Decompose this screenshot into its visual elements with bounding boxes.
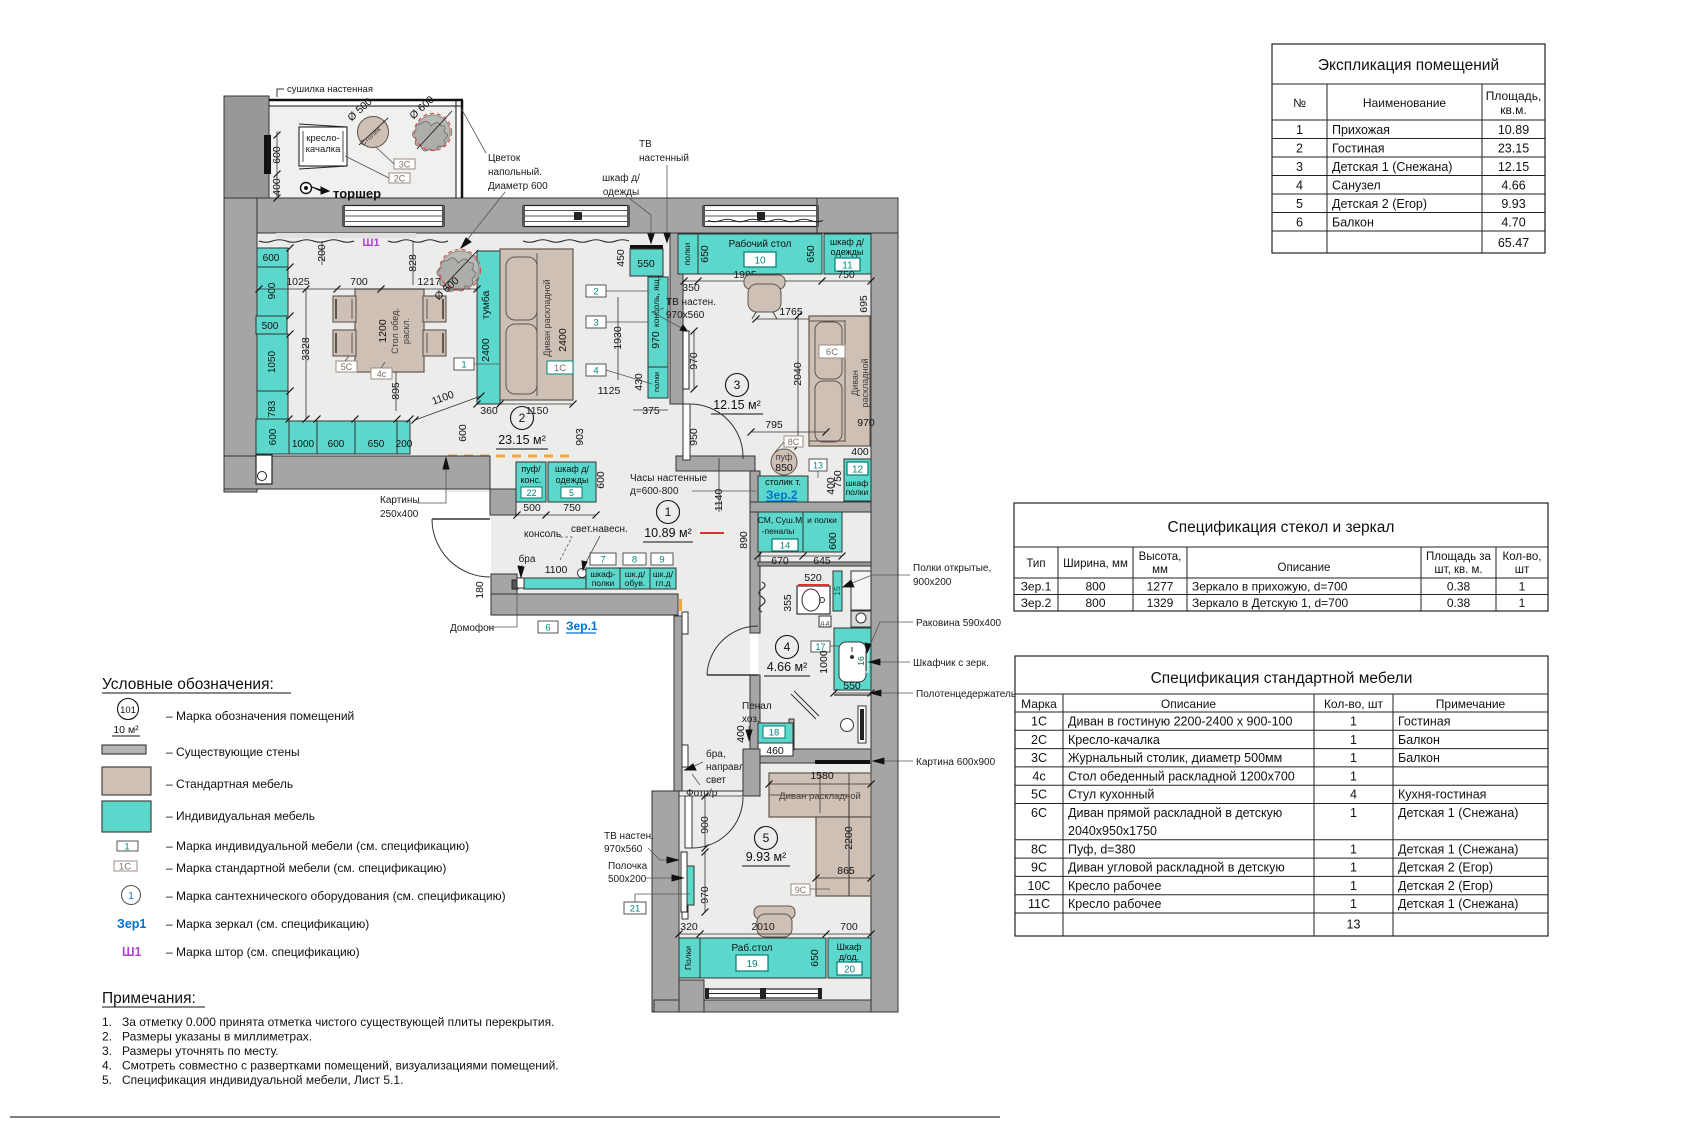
svg-text:Описание: Описание bbox=[1278, 562, 1331, 574]
svg-text:4: 4 bbox=[1350, 788, 1357, 802]
svg-text:4.66: 4.66 bbox=[1501, 179, 1525, 193]
svg-text:460: 460 bbox=[766, 745, 784, 757]
svg-text:3С: 3С bbox=[1031, 751, 1047, 765]
svg-text:– Стандартная мебель: – Стандартная мебель bbox=[166, 777, 293, 791]
svg-text:400: 400 bbox=[851, 446, 869, 458]
svg-text:Полочка: Полочка bbox=[608, 861, 648, 872]
svg-text:8С: 8С bbox=[788, 437, 800, 447]
svg-text:2400: 2400 bbox=[480, 338, 492, 362]
svg-text:5.: 5. bbox=[102, 1073, 112, 1087]
svg-text:обув.: обув. bbox=[625, 578, 646, 588]
svg-text:Балкон: Балкон bbox=[1398, 733, 1440, 747]
svg-text:Зер.1: Зер.1 bbox=[566, 619, 598, 633]
svg-text:раскл.: раскл. bbox=[401, 318, 411, 344]
svg-text:Кресло рабочее: Кресло рабочее bbox=[1068, 897, 1161, 911]
svg-text:шкаф д/: шкаф д/ bbox=[830, 237, 865, 247]
svg-text:1580: 1580 bbox=[810, 770, 834, 782]
svg-text:970х560: 970х560 bbox=[604, 844, 643, 855]
svg-text:Прихожая: Прихожая bbox=[1332, 123, 1390, 137]
svg-text:500: 500 bbox=[262, 321, 279, 332]
svg-text:65.47: 65.47 bbox=[1498, 236, 1529, 250]
svg-text:5С: 5С bbox=[1031, 788, 1047, 802]
svg-text:1: 1 bbox=[1350, 879, 1357, 893]
svg-text:одежды: одежды bbox=[556, 475, 589, 485]
svg-text:8С: 8С bbox=[1031, 842, 1047, 856]
svg-text:полки: полки bbox=[846, 487, 869, 497]
svg-text:890: 890 bbox=[738, 531, 750, 549]
svg-text:Шкаф: Шкаф bbox=[837, 942, 862, 952]
svg-text:6С: 6С bbox=[1031, 806, 1047, 820]
svg-text:Кресло рабочее: Кресло рабочее bbox=[1068, 879, 1161, 893]
svg-text:800: 800 bbox=[1085, 580, 1105, 594]
svg-text:10С: 10С bbox=[1028, 879, 1051, 893]
svg-text:качалка: качалка bbox=[306, 144, 342, 155]
svg-text:Кухня-гостиная: Кухня-гостиная bbox=[1398, 788, 1486, 802]
svg-text:360: 360 bbox=[480, 405, 498, 417]
svg-text:3: 3 bbox=[734, 378, 741, 392]
svg-text:Детская 1 (Снежана): Детская 1 (Снежана) bbox=[1398, 897, 1518, 911]
svg-text:За отметку 0.000 принята отмет: За отметку 0.000 принята отметка чистого… bbox=[122, 1015, 554, 1029]
svg-text:3: 3 bbox=[1296, 160, 1303, 174]
svg-text:750: 750 bbox=[832, 470, 844, 488]
svg-text:2С: 2С bbox=[394, 174, 406, 184]
svg-text:шт, кв. м.: шт, кв. м. bbox=[1434, 564, 1482, 576]
svg-text:4: 4 bbox=[593, 366, 598, 377]
svg-text:9С: 9С bbox=[795, 885, 807, 895]
svg-text:Кол-во,: Кол-во, bbox=[1503, 551, 1542, 563]
svg-text:1: 1 bbox=[1350, 806, 1357, 820]
svg-text:4: 4 bbox=[784, 640, 791, 654]
svg-text:Детская 1 (Снежана): Детская 1 (Снежана) bbox=[1398, 842, 1518, 856]
svg-text:одежды: одежды bbox=[831, 247, 864, 257]
svg-text:4с: 4с bbox=[377, 369, 387, 379]
svg-text:Пенал: Пенал bbox=[742, 701, 772, 712]
svg-text:Ш1: Ш1 bbox=[122, 945, 142, 959]
svg-text:– Марка штор (см. спецификацию: – Марка штор (см. спецификацию) bbox=[166, 945, 360, 959]
svg-text:650: 650 bbox=[805, 245, 817, 263]
svg-text:Шкафчик с зерк.: Шкафчик с зерк. bbox=[913, 657, 989, 669]
svg-text:д/од.: д/од. bbox=[839, 952, 859, 962]
svg-text:18: 18 bbox=[769, 728, 780, 739]
svg-text:12.15: 12.15 bbox=[1498, 160, 1529, 174]
svg-text:10: 10 bbox=[754, 256, 766, 267]
svg-text:1: 1 bbox=[1519, 580, 1526, 594]
svg-text:600: 600 bbox=[595, 471, 607, 489]
svg-text:650: 650 bbox=[809, 949, 821, 967]
svg-text:Стол обеденный раскладной 1200: Стол обеденный раскладной 1200х700 bbox=[1068, 769, 1295, 783]
svg-text:600: 600 bbox=[457, 424, 469, 442]
svg-text:Рабочий стол: Рабочий стол bbox=[729, 238, 792, 250]
svg-text:9С: 9С bbox=[1031, 861, 1047, 875]
svg-text:Площадь за: Площадь за bbox=[1426, 551, 1492, 563]
svg-text:Спецификация стандартной мебел: Спецификация стандартной мебели bbox=[1151, 670, 1413, 687]
svg-text:Детская 2 (Егор): Детская 2 (Егор) bbox=[1398, 861, 1493, 875]
svg-text:Наименование: Наименование bbox=[1363, 96, 1447, 110]
svg-text:торшер: торшер bbox=[333, 186, 381, 201]
svg-text:1000: 1000 bbox=[818, 650, 830, 674]
svg-text:5: 5 bbox=[569, 488, 574, 498]
svg-text:1: 1 bbox=[124, 842, 129, 853]
svg-text:Стол обед.: Стол обед. bbox=[390, 308, 400, 354]
svg-text:430: 430 bbox=[633, 373, 645, 391]
svg-text:1765: 1765 bbox=[779, 306, 803, 318]
svg-text:20: 20 bbox=[844, 965, 856, 976]
svg-text:200: 200 bbox=[396, 439, 413, 450]
svg-text:6: 6 bbox=[545, 623, 550, 634]
svg-text:1: 1 bbox=[1350, 861, 1357, 875]
svg-text:11С: 11С bbox=[1028, 897, 1050, 911]
svg-text:консоль, ящ.: консоль, ящ. bbox=[651, 277, 661, 327]
svg-text:полки: полки bbox=[652, 372, 661, 392]
svg-text:970х560: 970х560 bbox=[666, 310, 705, 321]
svg-text:1025: 1025 bbox=[286, 276, 310, 288]
svg-text:Диван: Диван bbox=[850, 370, 860, 396]
svg-text:9: 9 bbox=[659, 555, 664, 566]
svg-text:12: 12 bbox=[852, 465, 864, 476]
svg-text:Гостиная: Гостиная bbox=[1398, 715, 1450, 729]
svg-text:450: 450 bbox=[615, 249, 627, 267]
svg-text:1: 1 bbox=[461, 360, 466, 371]
svg-text:столик т.: столик т. bbox=[765, 477, 801, 487]
svg-text:Смотреть совместно с развертка: Смотреть совместно с развертками помещен… bbox=[122, 1059, 559, 1073]
svg-text:шкаф д/: шкаф д/ bbox=[602, 172, 640, 184]
svg-text:400: 400 bbox=[735, 725, 747, 743]
svg-text:Зер1: Зер1 bbox=[117, 917, 146, 931]
svg-text:бра,: бра, bbox=[706, 748, 726, 760]
svg-text:д=600-800: д=600-800 bbox=[630, 486, 679, 497]
svg-text:одежды: одежды bbox=[603, 187, 639, 198]
svg-text:1217: 1217 bbox=[417, 276, 441, 288]
svg-text:3.: 3. bbox=[102, 1044, 112, 1058]
svg-text:1125: 1125 bbox=[598, 385, 621, 397]
svg-text:полки: полки bbox=[592, 578, 615, 588]
svg-text:1: 1 bbox=[1296, 123, 1303, 137]
svg-text:СМ, Суш.М: СМ, Суш.М bbox=[758, 515, 803, 525]
svg-text:Диван прямой раскладной в детс: Диван прямой раскладной в детскую bbox=[1068, 806, 1282, 820]
svg-text:Тип: Тип bbox=[1026, 558, 1045, 570]
svg-text:250х400: 250х400 bbox=[380, 509, 419, 520]
svg-text:– Марка стандартной мебели (см: – Марка стандартной мебели (см. специфик… bbox=[166, 861, 446, 875]
svg-text:783: 783 bbox=[267, 400, 278, 417]
svg-text:консоль: консоль bbox=[524, 529, 561, 540]
svg-text:3: 3 bbox=[593, 318, 598, 329]
svg-text:1: 1 bbox=[665, 505, 672, 519]
svg-text:№: № bbox=[1293, 96, 1306, 110]
svg-text:ТВ настен.: ТВ настен. bbox=[666, 297, 716, 308]
svg-text:– Марка зеркал (см. спецификац: – Марка зеркал (см. спецификацию) bbox=[166, 917, 369, 931]
svg-text:Детская 2 (Егор): Детская 2 (Егор) bbox=[1398, 879, 1493, 893]
svg-text:раскладной: раскладной bbox=[860, 358, 870, 407]
svg-text:Кресло-качалка: Кресло-качалка bbox=[1068, 733, 1160, 747]
svg-text:Полки открытые,: Полки открытые, bbox=[913, 563, 991, 574]
svg-text:– Марка обозначения помещений: – Марка обозначения помещений bbox=[166, 709, 354, 723]
svg-text:Размеры указаны в миллиметрах.: Размеры указаны в миллиметрах. bbox=[122, 1030, 312, 1044]
svg-text:Ш1: Ш1 bbox=[362, 237, 379, 249]
svg-text:355: 355 bbox=[782, 594, 794, 612]
svg-text:1: 1 bbox=[1350, 769, 1357, 783]
svg-text:Зеркало в Детскую 1, d=700: Зеркало в Детскую 1, d=700 bbox=[1192, 596, 1348, 610]
svg-text:Примечание: Примечание bbox=[1436, 697, 1506, 711]
svg-text:4.66 м²: 4.66 м² bbox=[767, 660, 808, 674]
svg-text:свет.навесн.: свет.навесн. bbox=[571, 524, 628, 535]
svg-text:-пеналы: -пеналы bbox=[762, 526, 795, 536]
svg-text:пуф/: пуф/ bbox=[521, 464, 541, 474]
svg-text:101: 101 bbox=[120, 705, 136, 716]
svg-text:550: 550 bbox=[843, 680, 861, 692]
svg-text:Описание: Описание bbox=[1161, 697, 1217, 711]
svg-text:Домофон: Домофон bbox=[450, 622, 494, 634]
svg-text:кв.м.: кв.м. bbox=[1500, 103, 1527, 117]
svg-text:Детская 1 (Снежана): Детская 1 (Снежана) bbox=[1398, 806, 1518, 820]
svg-text:10.89 м²: 10.89 м² bbox=[644, 526, 692, 540]
svg-text:14: 14 bbox=[780, 541, 791, 552]
svg-text:Картины: Картины bbox=[380, 495, 420, 506]
svg-text:0.38: 0.38 bbox=[1447, 596, 1471, 610]
svg-text:1200: 1200 bbox=[377, 319, 389, 343]
svg-text:Экспликация помещений: Экспликация помещений bbox=[1318, 57, 1499, 74]
svg-text:23.15 м²: 23.15 м² bbox=[498, 433, 546, 447]
svg-text:Раб.стол: Раб.стол bbox=[731, 942, 772, 954]
svg-text:шкаф д/: шкаф д/ bbox=[555, 464, 590, 474]
svg-text:Диаметр 600: Диаметр 600 bbox=[488, 181, 548, 192]
svg-text:1: 1 bbox=[1350, 715, 1357, 729]
svg-text:15: 15 bbox=[832, 586, 842, 596]
svg-text:700: 700 bbox=[350, 276, 368, 288]
svg-text:2С: 2С bbox=[1031, 733, 1047, 747]
svg-text:1: 1 bbox=[1350, 842, 1357, 856]
svg-text:сушилка настенная: сушилка настенная bbox=[287, 84, 373, 95]
svg-text:Размеры уточнять по месту.: Размеры уточнять по месту. bbox=[122, 1044, 279, 1058]
svg-text:1: 1 bbox=[1350, 733, 1357, 747]
svg-text:Полотенцедержатель: Полотенцедержатель bbox=[916, 689, 1016, 700]
svg-text:Зер.1: Зер.1 bbox=[1021, 580, 1052, 594]
svg-text:970: 970 bbox=[650, 331, 662, 349]
svg-text:7: 7 bbox=[600, 555, 605, 566]
svg-text:645: 645 bbox=[813, 555, 831, 567]
svg-text:9.93: 9.93 bbox=[1501, 197, 1525, 211]
svg-text:ТВ настен.: ТВ настен. bbox=[604, 831, 654, 842]
svg-text:– Марка сантехнического оборуд: – Марка сантехнического оборудования (см… bbox=[166, 889, 506, 903]
svg-text:Диван угловой раскладной в дет: Диван угловой раскладной в детскую bbox=[1068, 861, 1285, 875]
svg-text:1000: 1000 bbox=[292, 439, 315, 450]
svg-text:1С: 1С bbox=[554, 363, 566, 374]
svg-text:Марка: Марка bbox=[1021, 697, 1057, 711]
svg-text:свет: свет bbox=[706, 775, 726, 786]
svg-text:4.: 4. bbox=[102, 1059, 112, 1073]
svg-text:0.38: 0.38 bbox=[1447, 580, 1471, 594]
svg-text:8: 8 bbox=[632, 555, 637, 566]
svg-text:Ширина, мм: Ширина, мм bbox=[1063, 558, 1128, 570]
svg-text:4с: 4с bbox=[1032, 769, 1045, 783]
svg-text:Журнальный столик, диаметр 500: Журнальный столик, диаметр 500мм bbox=[1068, 751, 1282, 765]
svg-text:ТВ: ТВ bbox=[639, 139, 652, 150]
svg-text:Зер.2: Зер.2 bbox=[1021, 596, 1052, 610]
svg-text:д.д: д.д bbox=[821, 621, 830, 627]
svg-text:Цветок: Цветок bbox=[488, 153, 521, 164]
svg-text:795: 795 bbox=[765, 419, 783, 431]
svg-text:бра: бра bbox=[519, 553, 536, 565]
svg-text:напольный.: напольный. bbox=[488, 167, 542, 178]
svg-text:1100: 1100 bbox=[545, 564, 568, 576]
svg-text:350: 350 bbox=[682, 282, 700, 294]
svg-text:3С: 3С bbox=[399, 160, 411, 170]
svg-text:Полки: Полки bbox=[683, 946, 693, 970]
svg-text:1329: 1329 bbox=[1147, 596, 1174, 610]
svg-text:1С: 1С bbox=[119, 862, 131, 873]
svg-text:6С: 6С bbox=[826, 347, 838, 358]
svg-text:750: 750 bbox=[837, 269, 855, 281]
svg-text:16: 16 bbox=[856, 656, 866, 666]
svg-text:Раковина 590х400: Раковина 590х400 bbox=[916, 618, 1002, 629]
svg-text:2400: 2400 bbox=[557, 328, 569, 352]
svg-text:Балкон: Балкон bbox=[1332, 216, 1374, 230]
svg-text:375: 375 bbox=[642, 405, 660, 417]
svg-text:1: 1 bbox=[1350, 751, 1357, 765]
svg-text:550: 550 bbox=[637, 258, 655, 270]
svg-text:Условные обозначения:: Условные обозначения: bbox=[102, 676, 274, 693]
svg-text:1: 1 bbox=[128, 891, 134, 902]
svg-text:5С: 5С bbox=[341, 362, 353, 372]
svg-text:13: 13 bbox=[1347, 918, 1361, 932]
svg-text:кресло-: кресло- bbox=[306, 133, 340, 144]
svg-text:Площадь,: Площадь, bbox=[1486, 89, 1542, 103]
svg-text:2010: 2010 bbox=[751, 921, 775, 933]
svg-text:700: 700 bbox=[840, 921, 858, 933]
svg-text:Картина 600х900: Картина 600х900 bbox=[916, 757, 996, 768]
svg-text:2: 2 bbox=[593, 287, 598, 298]
svg-text:Часы настенные: Часы настенные bbox=[630, 473, 708, 484]
svg-text:600: 600 bbox=[827, 532, 839, 550]
svg-text:Диван в гостиную 2200-2400 х 9: Диван в гостиную 2200-2400 х 900-100 bbox=[1068, 715, 1292, 729]
svg-text:4.70: 4.70 bbox=[1501, 216, 1525, 230]
svg-text:направл.: направл. bbox=[706, 762, 747, 773]
svg-text:Спецификация стекол и зеркал: Спецификация стекол и зеркал bbox=[1168, 519, 1395, 536]
svg-text:– Существующие стены: – Существующие стены bbox=[166, 745, 300, 759]
svg-text:500х200: 500х200 bbox=[608, 874, 647, 885]
svg-text:500: 500 bbox=[523, 502, 541, 514]
svg-text:800: 800 bbox=[1085, 596, 1105, 610]
svg-text:2.: 2. bbox=[102, 1030, 112, 1044]
svg-text:23.15: 23.15 bbox=[1498, 142, 1529, 156]
svg-text:22: 22 bbox=[526, 488, 536, 498]
svg-text:600: 600 bbox=[328, 439, 345, 450]
svg-text:970: 970 bbox=[857, 417, 875, 429]
svg-text:950: 950 bbox=[688, 428, 700, 446]
svg-text:тумба: тумба bbox=[480, 290, 492, 319]
svg-text:– Марка индивидуальной мебели: – Марка индивидуальной мебели (см. специ… bbox=[166, 839, 469, 853]
svg-text:4: 4 bbox=[1296, 179, 1303, 193]
svg-text:Зеркало в прихожую, d=700: Зеркало в прихожую, d=700 bbox=[1192, 580, 1348, 594]
svg-text:695: 695 bbox=[858, 295, 870, 313]
svg-text:1050: 1050 bbox=[267, 350, 278, 373]
svg-text:Кол-во, шт: Кол-во, шт bbox=[1324, 697, 1384, 711]
svg-text:865: 865 bbox=[837, 865, 855, 877]
svg-text:320: 320 bbox=[680, 921, 698, 933]
svg-text:мм: мм bbox=[1152, 564, 1168, 576]
svg-text:1: 1 bbox=[1519, 596, 1526, 610]
svg-text:600: 600 bbox=[263, 253, 280, 264]
svg-text:180: 180 bbox=[474, 581, 486, 599]
svg-text:2: 2 bbox=[1296, 142, 1303, 156]
svg-text:1150: 1150 bbox=[526, 405, 549, 417]
svg-text:– Индивидуальная мебель: – Индивидуальная мебель bbox=[166, 809, 315, 823]
svg-text:настенный: настенный bbox=[639, 153, 689, 164]
svg-text:полки: полки bbox=[682, 242, 692, 265]
svg-text:Диван раскладной: Диван раскладной bbox=[542, 279, 552, 356]
svg-text:Санузел: Санузел bbox=[1332, 179, 1381, 193]
svg-text:900: 900 bbox=[267, 282, 278, 299]
svg-text:Пуф, d=380: Пуф, d=380 bbox=[1068, 842, 1135, 856]
svg-text:900х200: 900х200 bbox=[913, 577, 952, 588]
svg-text:13: 13 bbox=[813, 461, 823, 471]
svg-text:гл.д: гл.д bbox=[655, 578, 670, 588]
svg-text:Спецификация индивидуальной ме: Спецификация индивидуальной мебели, Лист… bbox=[122, 1073, 403, 1087]
svg-text:и полки: и полки bbox=[807, 515, 837, 525]
svg-text:5: 5 bbox=[1296, 197, 1303, 211]
svg-text:1: 1 bbox=[1350, 897, 1357, 911]
svg-text:21: 21 bbox=[630, 904, 641, 915]
svg-text:650: 650 bbox=[368, 439, 385, 450]
svg-text:650: 650 bbox=[699, 245, 711, 263]
svg-text:10.89: 10.89 bbox=[1498, 123, 1529, 137]
svg-text:конс.: конс. bbox=[520, 475, 541, 485]
svg-text:12.15 м²: 12.15 м² bbox=[713, 398, 761, 412]
svg-text:850: 850 bbox=[775, 462, 793, 474]
svg-text:520: 520 bbox=[804, 572, 822, 584]
svg-text:903: 903 bbox=[574, 428, 586, 446]
svg-text:600: 600 bbox=[268, 428, 279, 445]
svg-text:Балкон: Балкон bbox=[1398, 751, 1440, 765]
svg-text:2: 2 bbox=[519, 411, 526, 425]
svg-text:Стул кухонный: Стул кухонный bbox=[1068, 788, 1154, 802]
svg-text:9.93 м²: 9.93 м² bbox=[746, 850, 787, 864]
svg-text:5: 5 bbox=[763, 831, 770, 845]
svg-text:Примечания:: Примечания: bbox=[102, 990, 196, 1007]
svg-text:Детская 1 (Снежана): Детская 1 (Снежана) bbox=[1332, 160, 1452, 174]
svg-text:шт: шт bbox=[1515, 564, 1530, 576]
svg-text:хоз.: хоз. bbox=[742, 714, 760, 725]
svg-text:Высота,: Высота, bbox=[1139, 551, 1182, 563]
svg-text:1С: 1С bbox=[1031, 715, 1047, 729]
svg-text:пуф: пуф bbox=[776, 452, 793, 462]
svg-text:750: 750 bbox=[563, 502, 581, 514]
svg-text:19: 19 bbox=[746, 959, 758, 970]
svg-text:670: 670 bbox=[771, 555, 789, 567]
svg-text:2040х950х1750: 2040х950х1750 bbox=[1068, 824, 1157, 838]
svg-text:Зер.2: Зер.2 bbox=[766, 488, 798, 502]
svg-text:10 м²: 10 м² bbox=[113, 724, 139, 736]
svg-text:6: 6 bbox=[1296, 216, 1303, 230]
svg-text:1.: 1. bbox=[102, 1015, 112, 1029]
svg-text:Детская 2 (Егор): Детская 2 (Егор) bbox=[1332, 197, 1427, 211]
svg-text:Гостиная: Гостиная bbox=[1332, 142, 1384, 156]
svg-text:1277: 1277 bbox=[1147, 580, 1174, 594]
